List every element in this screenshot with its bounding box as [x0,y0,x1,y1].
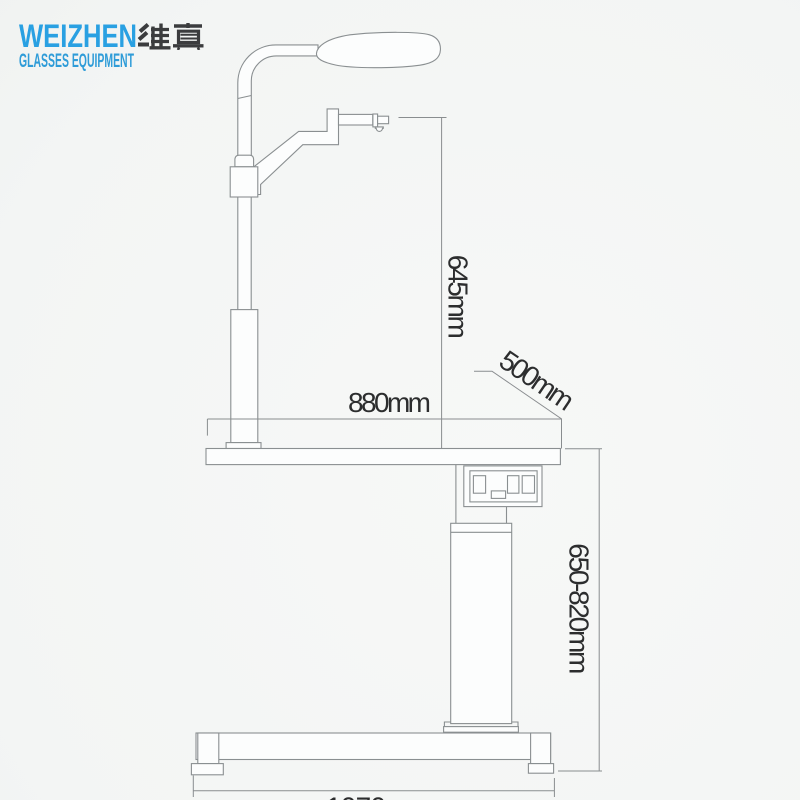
svg-text:650-820mm: 650-820mm [563,543,594,674]
svg-text:500mm: 500mm [494,344,580,416]
svg-text:880mm: 880mm [348,387,431,418]
svg-text:1070: 1070 [326,792,386,800]
svg-text:645mm: 645mm [443,255,474,339]
